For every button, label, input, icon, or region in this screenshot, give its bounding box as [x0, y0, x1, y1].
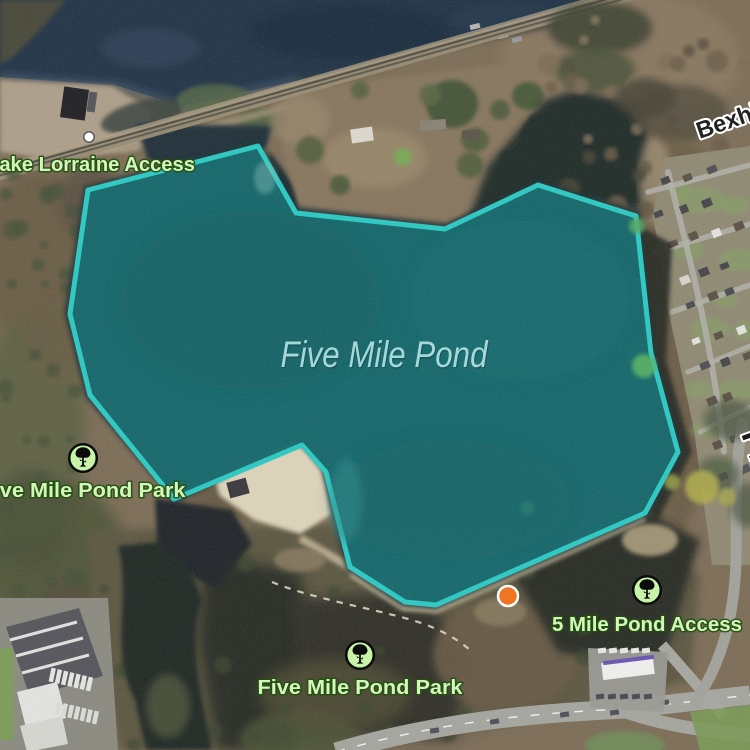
svg-text:Lake Lorraine Access: Lake Lorraine Access [0, 154, 195, 176]
svg-text:Five Mile Pond Park: Five Mile Pond Park [258, 677, 464, 699]
svg-text:5 Mile Pond Access: 5 Mile Pond Access [552, 614, 742, 636]
svg-text:Five Mile Pond: Five Mile Pond [281, 334, 489, 375]
svg-text:Five Mile Pond Park: Five Mile Pond Park [0, 480, 186, 502]
